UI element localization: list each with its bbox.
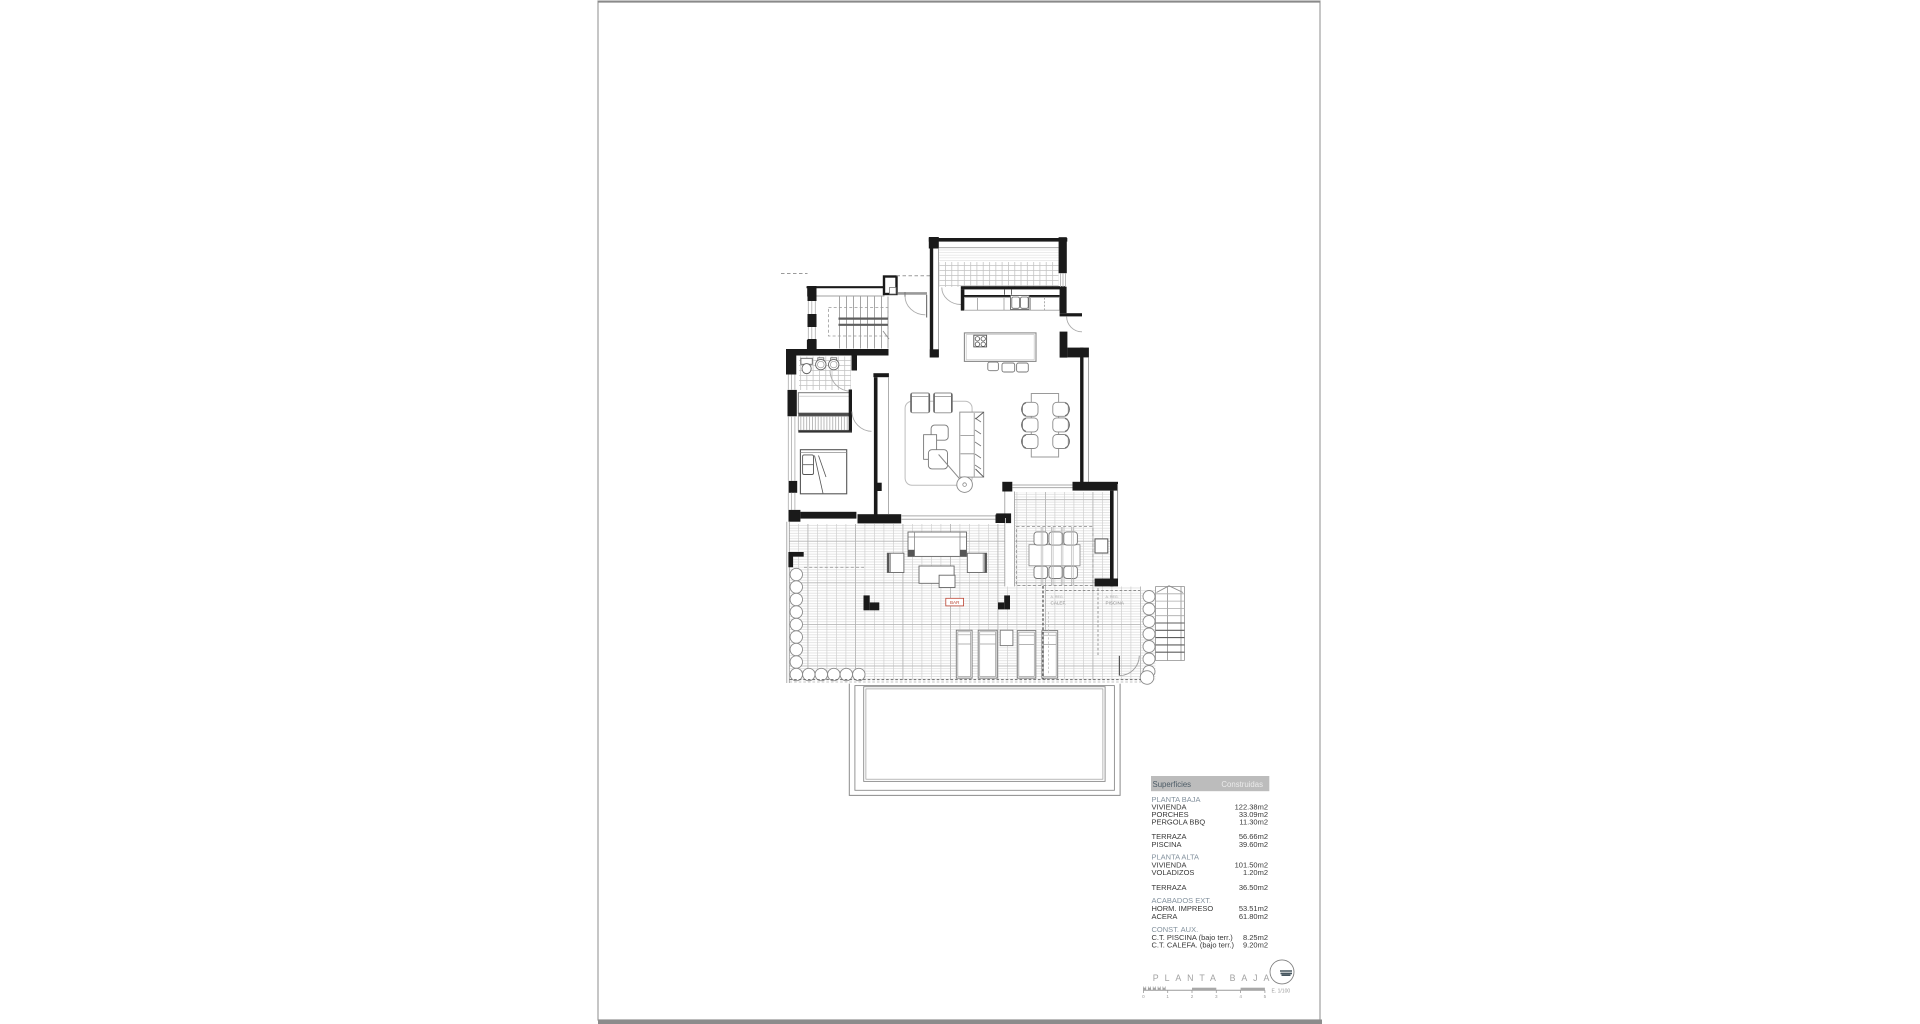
svg-text:36.50m2: 36.50m2 <box>1239 883 1268 892</box>
svg-text:PLANTA BAJA: PLANTA BAJA <box>1153 973 1275 983</box>
svg-text:1.20m2: 1.20m2 <box>1243 868 1268 877</box>
svg-text:A. REG.: A. REG. <box>1051 595 1064 599</box>
svg-text:PISCINA: PISCINA <box>1106 600 1125 605</box>
svg-text:VOLADIZOS: VOLADIZOS <box>1152 868 1195 877</box>
svg-text:Construidas: Construidas <box>1221 780 1263 789</box>
svg-text:5: 5 <box>1264 994 1267 999</box>
svg-text:C.T. CALEFA. (bajo terr.): C.T. CALEFA. (bajo terr.) <box>1152 940 1235 949</box>
svg-text:11.30m2: 11.30m2 <box>1239 818 1268 827</box>
svg-text:PERGOLA BBQ: PERGOLA BBQ <box>1152 818 1206 827</box>
svg-text:9.20m2: 9.20m2 <box>1243 940 1268 949</box>
svg-text:3: 3 <box>1215 994 1218 999</box>
svg-text:ACERA: ACERA <box>1152 912 1178 921</box>
svg-text:4: 4 <box>1239 994 1242 999</box>
svg-text:BAR: BAR <box>950 600 960 605</box>
svg-text:1: 1 <box>1166 994 1169 999</box>
svg-text:2: 2 <box>1191 994 1194 999</box>
svg-text:39.60m2: 39.60m2 <box>1239 840 1268 849</box>
svg-text:61.80m2: 61.80m2 <box>1239 912 1268 921</box>
svg-text:E. 1/100: E. 1/100 <box>1272 988 1291 994</box>
svg-text:Superficies: Superficies <box>1153 780 1192 789</box>
svg-text:CALEF.: CALEF. <box>1051 600 1067 605</box>
svg-text:PISCINA: PISCINA <box>1152 840 1182 849</box>
svg-text:A. REG.: A. REG. <box>1106 595 1119 599</box>
svg-text:0: 0 <box>1142 994 1145 999</box>
svg-text:TERRAZA: TERRAZA <box>1152 883 1187 892</box>
